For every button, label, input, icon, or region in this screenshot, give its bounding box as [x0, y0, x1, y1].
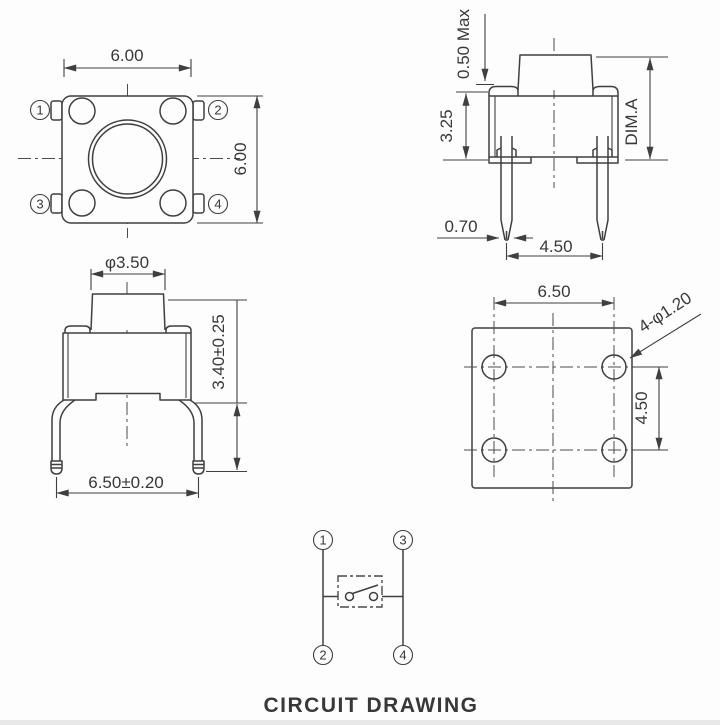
hole-diameter-dim: 4-φ1.20 — [635, 288, 695, 336]
pin4-label: 4 — [214, 197, 221, 212]
right-lead — [597, 136, 608, 240]
front-view: φ3.50 3.40±0.25 6.50±0.20 — [51, 253, 247, 498]
tab-pin1 — [51, 101, 62, 120]
body-outline — [63, 333, 191, 400]
right-shoulder — [593, 87, 618, 97]
pitch-x-dim: 6.50 — [537, 282, 570, 301]
pin-wires — [323, 550, 403, 645]
left-lead — [52, 400, 75, 461]
pin2-label: 2 — [214, 103, 221, 118]
hole-row-centerlines — [464, 367, 644, 450]
left-lead — [501, 136, 512, 240]
pin3-label: 3 — [399, 533, 406, 548]
button-stem — [518, 55, 593, 90]
top-height-dim: 6.00 — [231, 142, 250, 175]
top-width-dim: 6.00 — [110, 46, 143, 65]
right-lead-tip — [193, 461, 204, 474]
right-lead — [179, 400, 202, 461]
right-shoulder — [166, 326, 191, 333]
height-extension-lines — [197, 96, 263, 223]
pin4-label: 4 — [399, 648, 406, 663]
pin1-label: 1 — [319, 533, 326, 548]
top-view: 1 2 3 4 6.00 6.00 — [18, 46, 263, 238]
stem-diameter-dim: φ3.50 — [105, 253, 149, 272]
switch-contact-right — [370, 593, 378, 601]
side-view: 0.50 Max 3.25 DIM.A 0.70 4.50 — [437, 9, 668, 260]
total-height-dim: DIM.A — [622, 98, 641, 146]
lead-pitch-dim: 4.50 — [539, 237, 572, 256]
pcb-outline — [472, 328, 632, 488]
drawing-canvas: 1 2 3 4 6.00 6.00 0.50 Max — [0, 0, 720, 720]
left-shoulder — [489, 87, 518, 97]
pin3-label: 3 — [36, 197, 43, 212]
lead-span-dim: 6.50±0.20 — [88, 473, 164, 492]
tact-switch-drawing: 1 2 3 4 6.00 6.00 0.50 Max — [0, 0, 720, 720]
tab-pin4 — [193, 194, 204, 213]
button-stem — [91, 294, 165, 330]
stem-dia-extension-lines — [91, 269, 165, 290]
protrusion-dim: 0.50 Max — [454, 9, 473, 79]
switch-body-outline — [62, 96, 193, 223]
height-tolerance-dim: 3.40±0.25 — [209, 314, 228, 390]
drawing-caption: CIRCUIT DRAWING — [264, 694, 479, 717]
pitch-y-dim: 4.50 — [632, 391, 651, 424]
left-shoulder — [65, 326, 90, 333]
circuit-diagram: 1 3 2 4 CIRCUIT DRAWING — [264, 531, 479, 718]
tab-pin3 — [51, 194, 62, 213]
pcb-layout-view: 6.50 4.50 4-φ1.20 — [464, 282, 701, 502]
pin2-label: 2 — [319, 648, 326, 663]
body-height-dim: 3.25 — [437, 109, 456, 142]
pin1-label: 1 — [36, 103, 43, 118]
lead-width-dim: 0.70 — [444, 217, 477, 236]
switch-contact-left — [346, 593, 354, 601]
left-lead-tip — [51, 461, 62, 474]
tab-pin2 — [193, 101, 204, 120]
